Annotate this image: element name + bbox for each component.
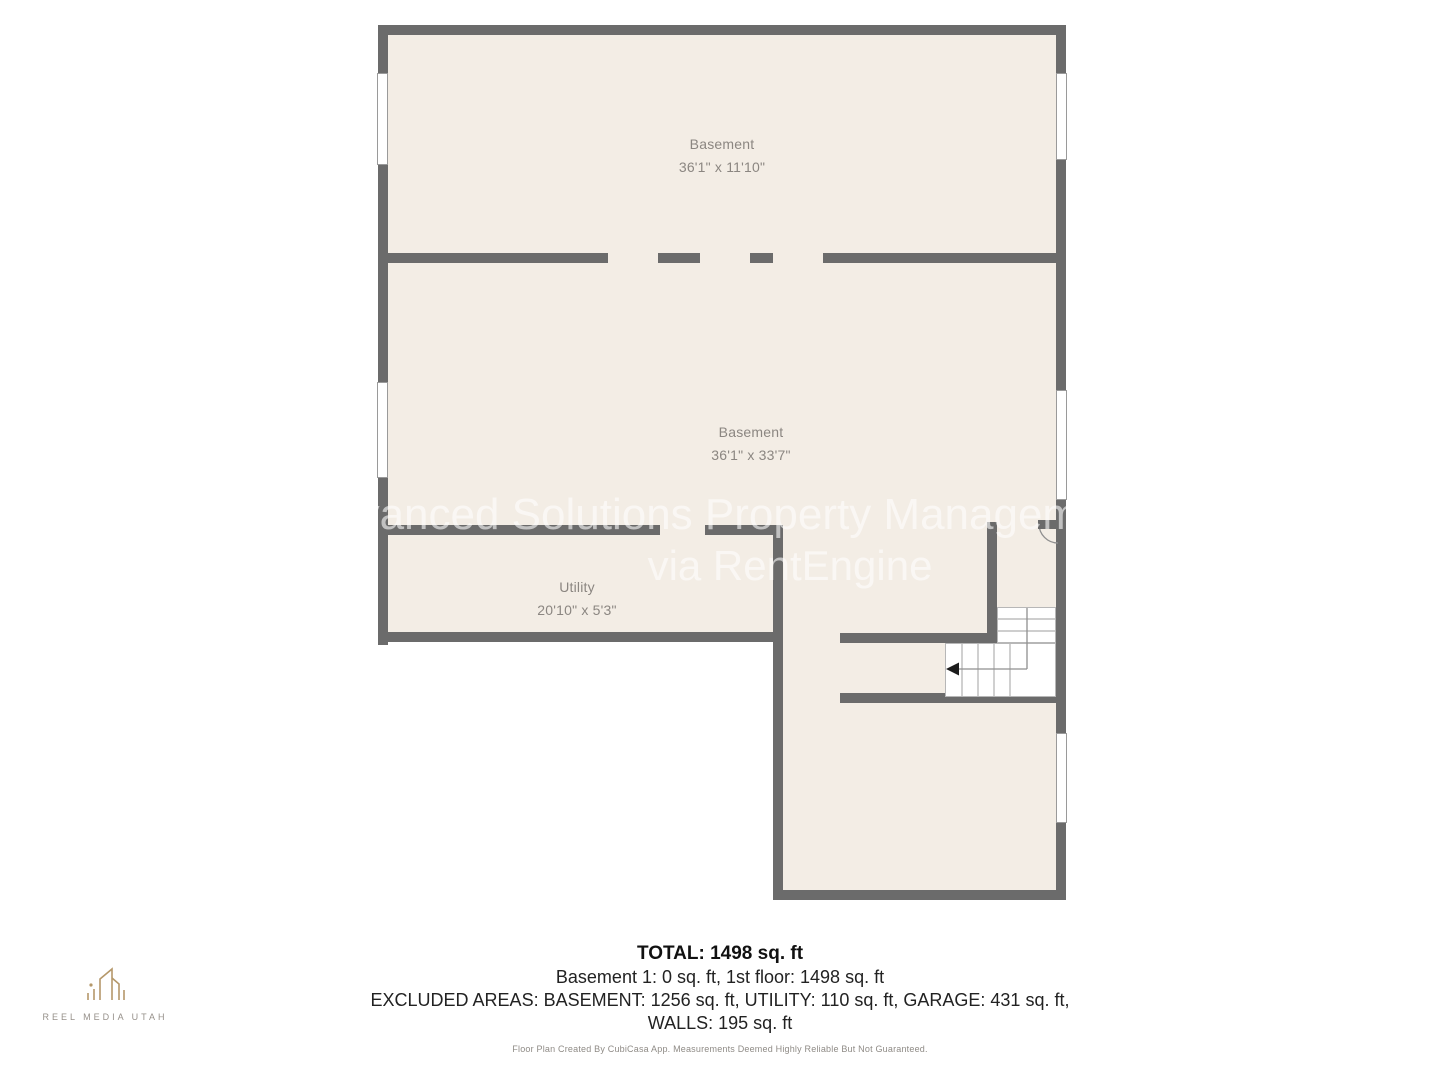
door-leaf <box>1038 520 1058 529</box>
total-area-text: TOTAL: 1498 sq. ft <box>0 941 1440 966</box>
room-label-basement-top: Basement 36'1" x 11'10" <box>612 133 832 179</box>
stairs-direction-arrow-icon <box>946 663 959 676</box>
room-label-utility: Utility 20'10" x 5'3" <box>467 576 687 622</box>
excluded-areas-text: EXCLUDED AREAS: BASEMENT: 1256 sq. ft, U… <box>0 989 1440 1012</box>
brand-logo: REEL MEDIA UTAH <box>40 966 170 1022</box>
walls-area-text: WALLS: 195 sq. ft <box>0 1012 1440 1035</box>
area-summary: TOTAL: 1498 sq. ft Basement 1: 0 sq. ft,… <box>0 941 1440 1035</box>
room-dimensions: 20'10" x 5'3" <box>467 599 687 622</box>
brand-logo-text: REEL MEDIA UTAH <box>40 1012 170 1022</box>
room-dimensions: 36'1" x 11'10" <box>612 156 832 179</box>
room-name: Utility <box>467 576 687 599</box>
floor-plan-page: Basement 36'1" x 11'10" Basement 36'1" x… <box>0 0 1440 1080</box>
reel-media-utah-logo-icon <box>75 966 135 1006</box>
room-label-basement-main: Basement 36'1" x 33'7" <box>641 421 861 467</box>
disclaimer-text: Floor Plan Created By CubiCasa App. Meas… <box>0 1044 1440 1054</box>
room-dimensions: 36'1" x 33'7" <box>641 444 861 467</box>
room-name: Basement <box>641 421 861 444</box>
room-name: Basement <box>612 133 832 156</box>
floors-area-text: Basement 1: 0 sq. ft, 1st floor: 1498 sq… <box>0 966 1440 989</box>
